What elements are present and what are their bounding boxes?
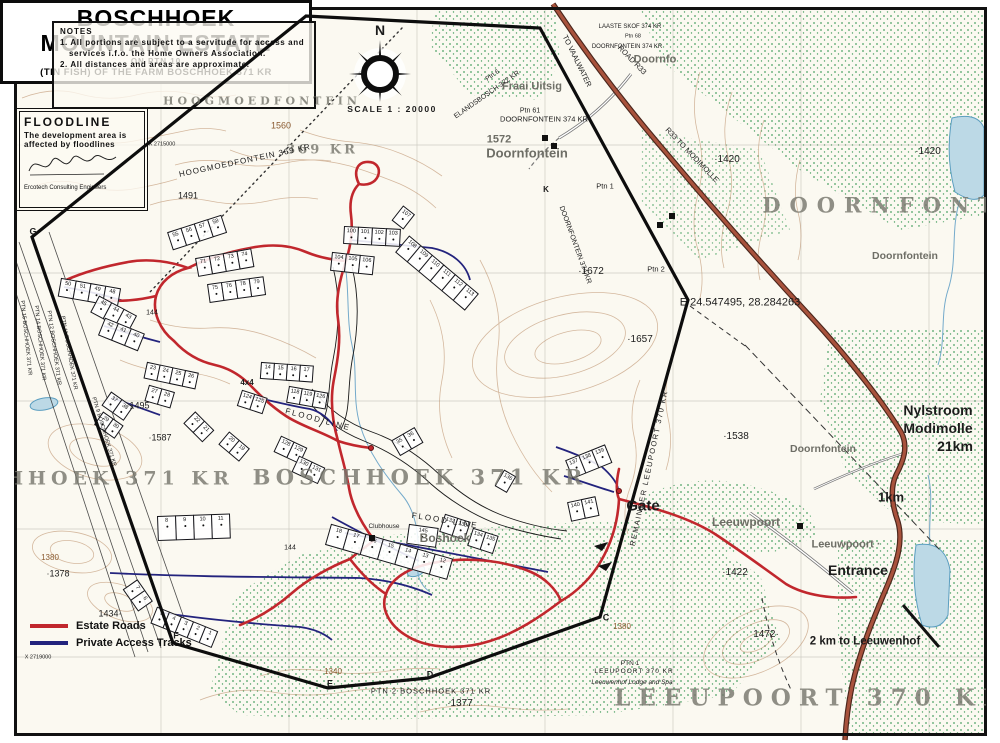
map-canvas: 5051494845444342414055565758717273747576… [0, 0, 1000, 743]
legend-label: Private Access Tracks [76, 637, 192, 649]
floodline-body: The development area is affected by floo… [24, 131, 132, 149]
info-boxes: NOTES 1. All portions are subject to a s… [0, 0, 1000, 743]
notes-line-2: 2. All distances and areas are approxima… [60, 60, 308, 69]
notes-box: NOTES 1. All portions are subject to a s… [52, 21, 316, 109]
legend-swatch [30, 641, 68, 645]
floodline-box: FLOODLINE The development area is affect… [16, 108, 148, 211]
legend-row: Private Access Tracks [30, 637, 192, 649]
legend-label: Estate Roads [76, 620, 146, 632]
floodline-title: FLOODLINE [24, 115, 140, 129]
notes-line-1a: 1. All portions are subject to a servitu… [60, 38, 308, 47]
floodline-firm: Ercotech Consulting Engineers [24, 185, 140, 191]
legend-row: Estate Roads [30, 620, 192, 632]
map-legend: Estate RoadsPrivate Access Tracks [30, 620, 192, 654]
legend-swatch [30, 624, 68, 628]
notes-line-1b: services i.f.o. the Home Owners Associat… [69, 49, 308, 58]
signature-icon [24, 149, 124, 179]
notes-title: NOTES [60, 27, 308, 36]
